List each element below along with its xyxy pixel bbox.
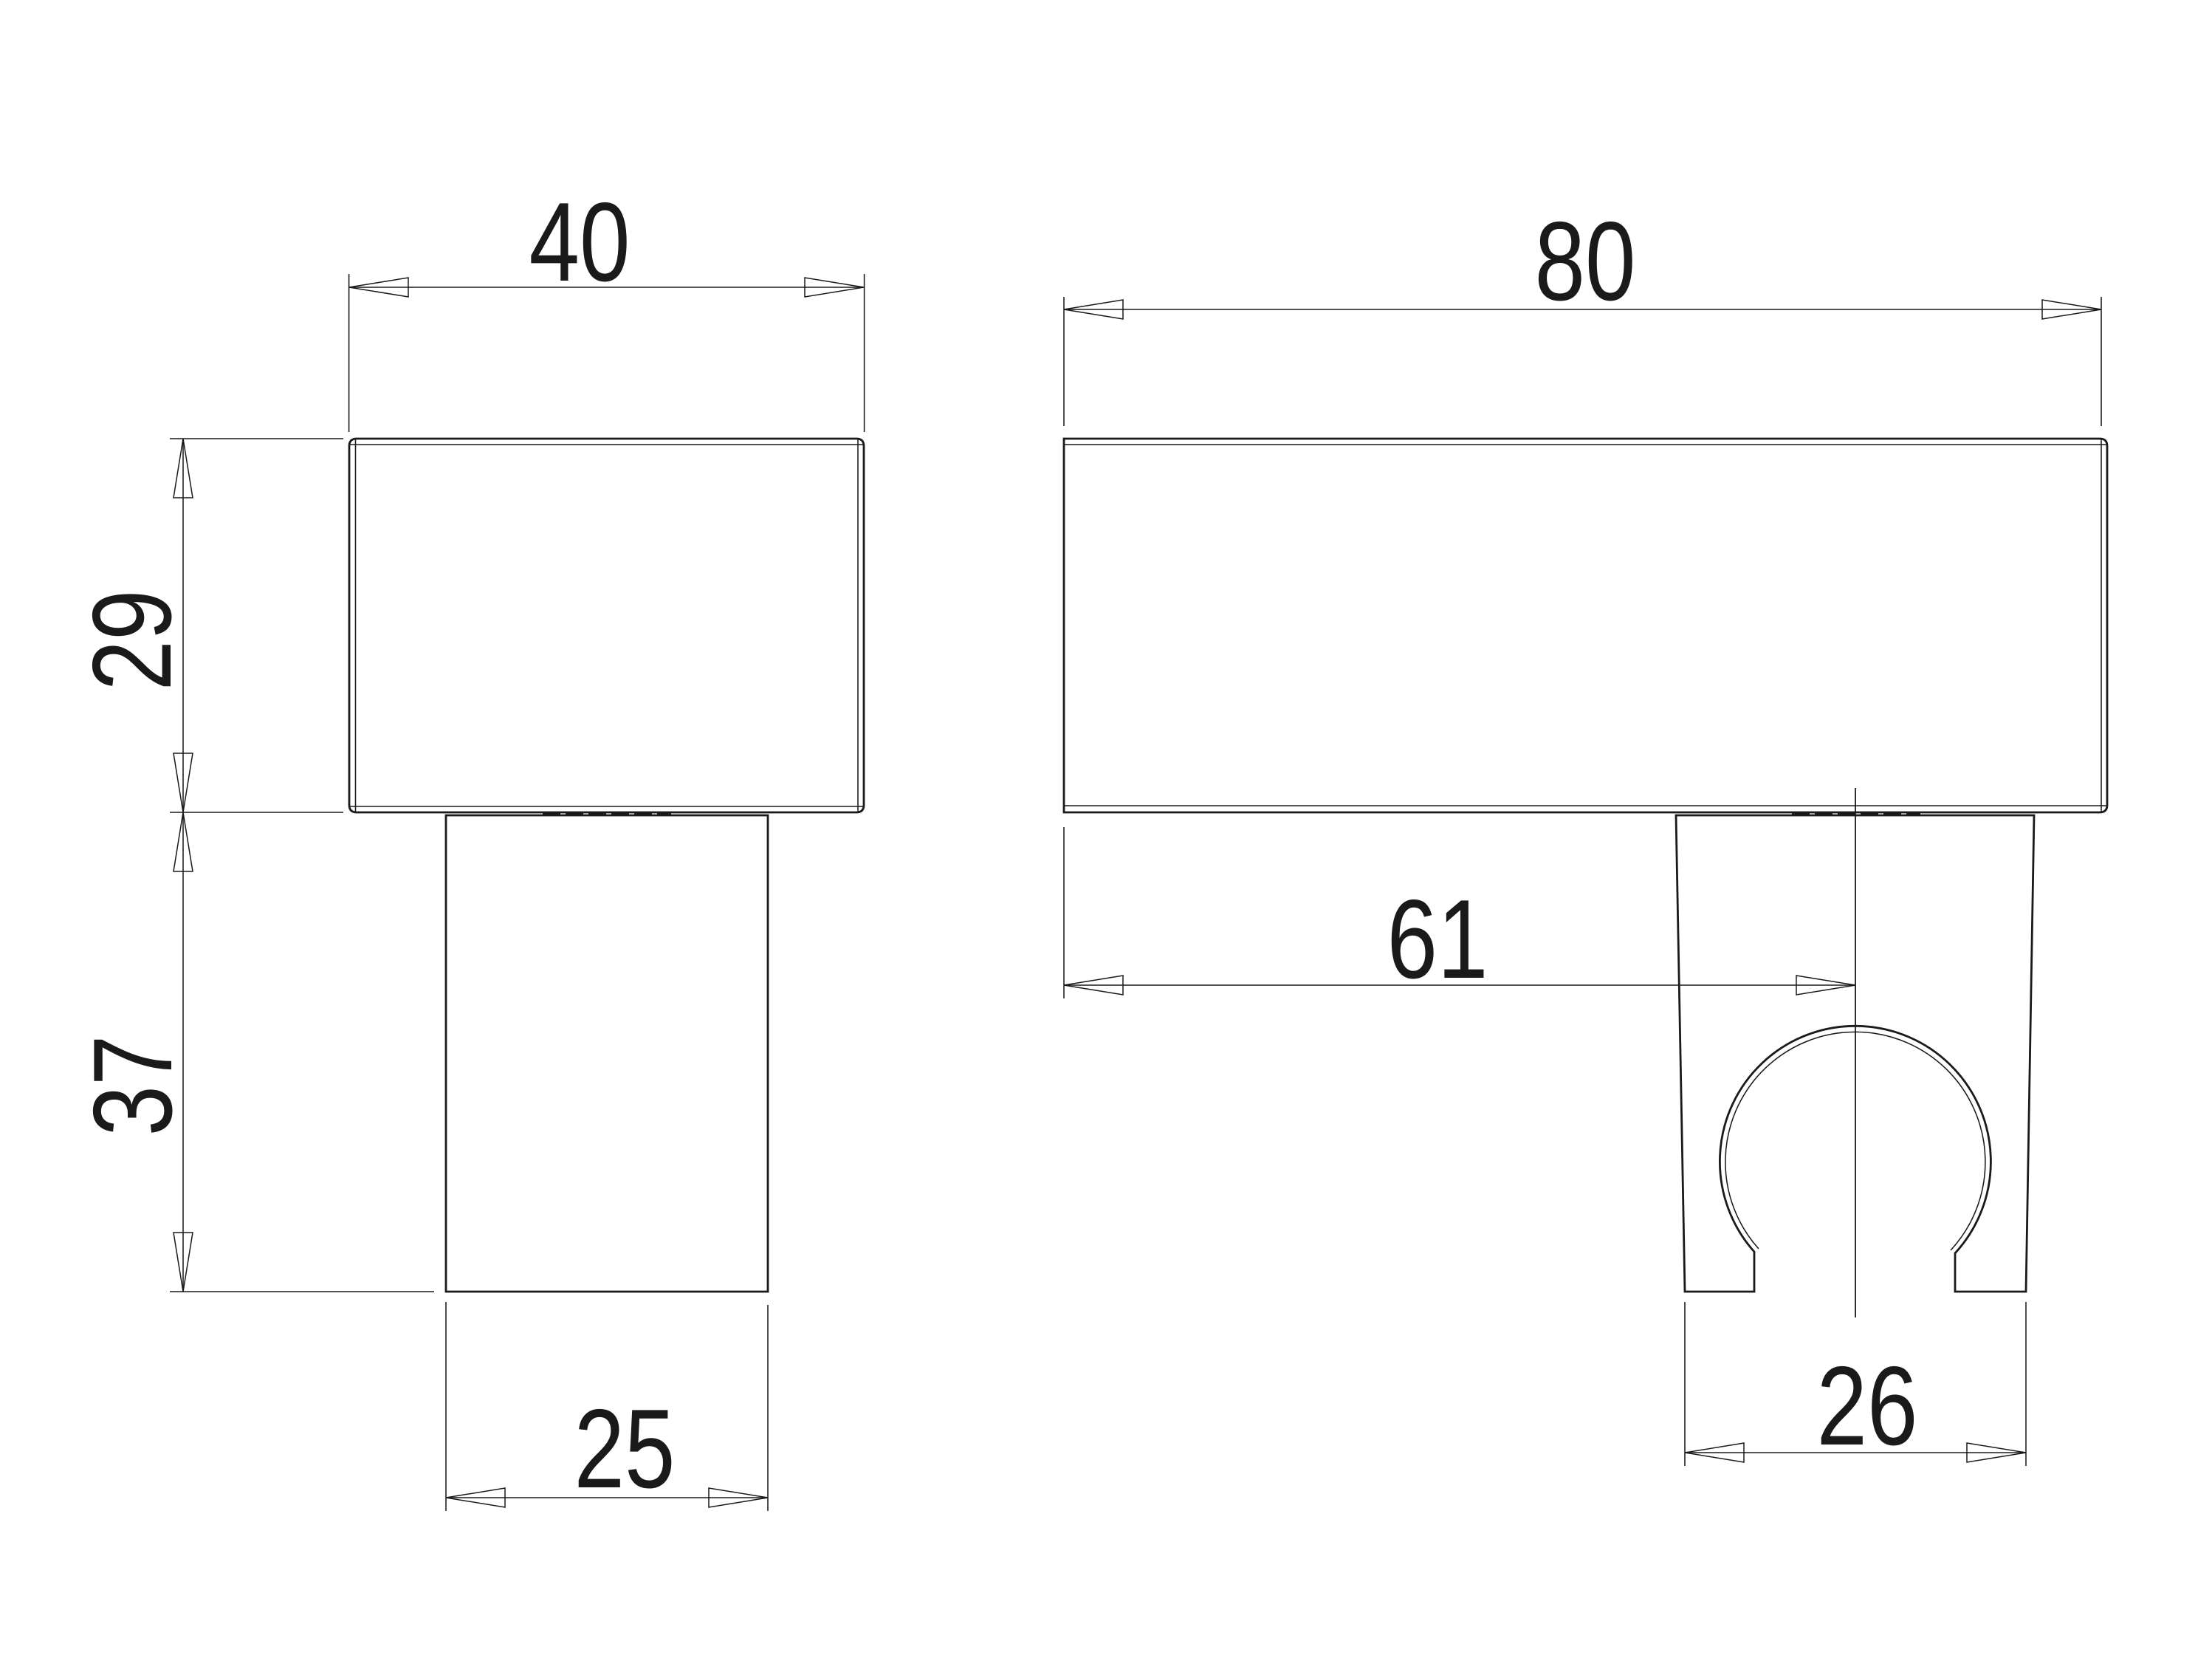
svg-text:37: 37 — [71, 1035, 196, 1137]
svg-text:25: 25 — [574, 1387, 676, 1512]
svg-text:61: 61 — [1387, 877, 1488, 1002]
svg-text:80: 80 — [1535, 199, 1636, 324]
svg-text:29: 29 — [70, 590, 195, 691]
svg-text:26: 26 — [1817, 1344, 1918, 1469]
svg-text:40: 40 — [529, 180, 631, 305]
